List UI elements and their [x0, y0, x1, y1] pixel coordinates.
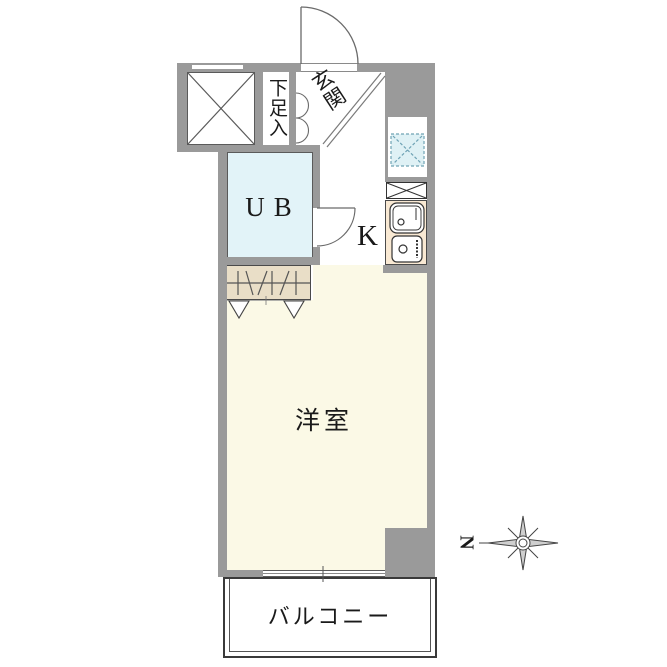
western-room-label: 洋室 — [262, 409, 386, 435]
unit-bath-label: UB — [227, 193, 319, 221]
x-cross-small-icon — [387, 183, 426, 198]
folding-door-triangle-icon — [227, 296, 311, 318]
compass-north-label: N — [456, 535, 477, 549]
stove-icon — [392, 236, 422, 262]
floor-plan: 玄関 下足入 UB K 洋室 バルコニー N — [0, 0, 667, 667]
ub-door-arc-icon — [317, 208, 355, 246]
balcony-label: バルコニー — [223, 605, 437, 628]
x-cross-icon — [188, 73, 254, 144]
closet-hatch-icon — [227, 271, 310, 295]
sink-icon — [390, 203, 424, 233]
entrance-door-arc-icon — [301, 7, 358, 64]
shoe-storage-label: 下足入 — [266, 78, 286, 138]
washing-machine-pan-icon — [391, 134, 424, 166]
compass-icon — [479, 516, 558, 570]
shoe-cabinet-door-arcs-icon — [296, 93, 309, 143]
kitchen-label: K — [357, 221, 378, 251]
